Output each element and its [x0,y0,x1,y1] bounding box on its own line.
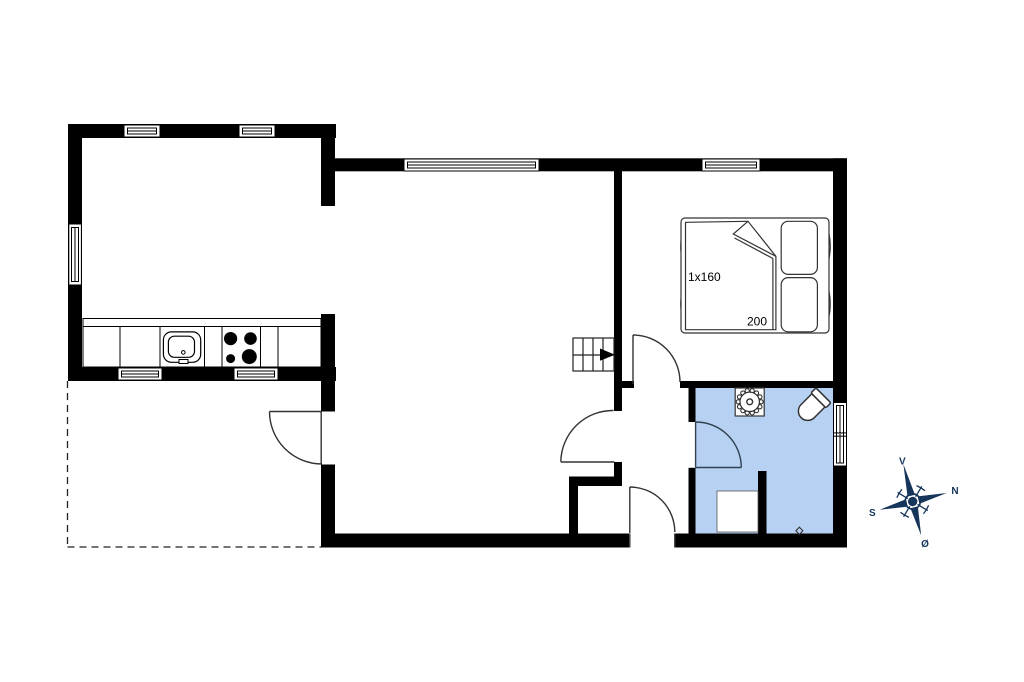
svg-text:200: 200 [747,315,767,329]
svg-text:Ø: Ø [921,539,929,550]
svg-text:N: N [951,486,958,497]
svg-text:V: V [899,456,906,467]
svg-text:1x160: 1x160 [688,270,721,284]
svg-text:S: S [869,508,876,519]
